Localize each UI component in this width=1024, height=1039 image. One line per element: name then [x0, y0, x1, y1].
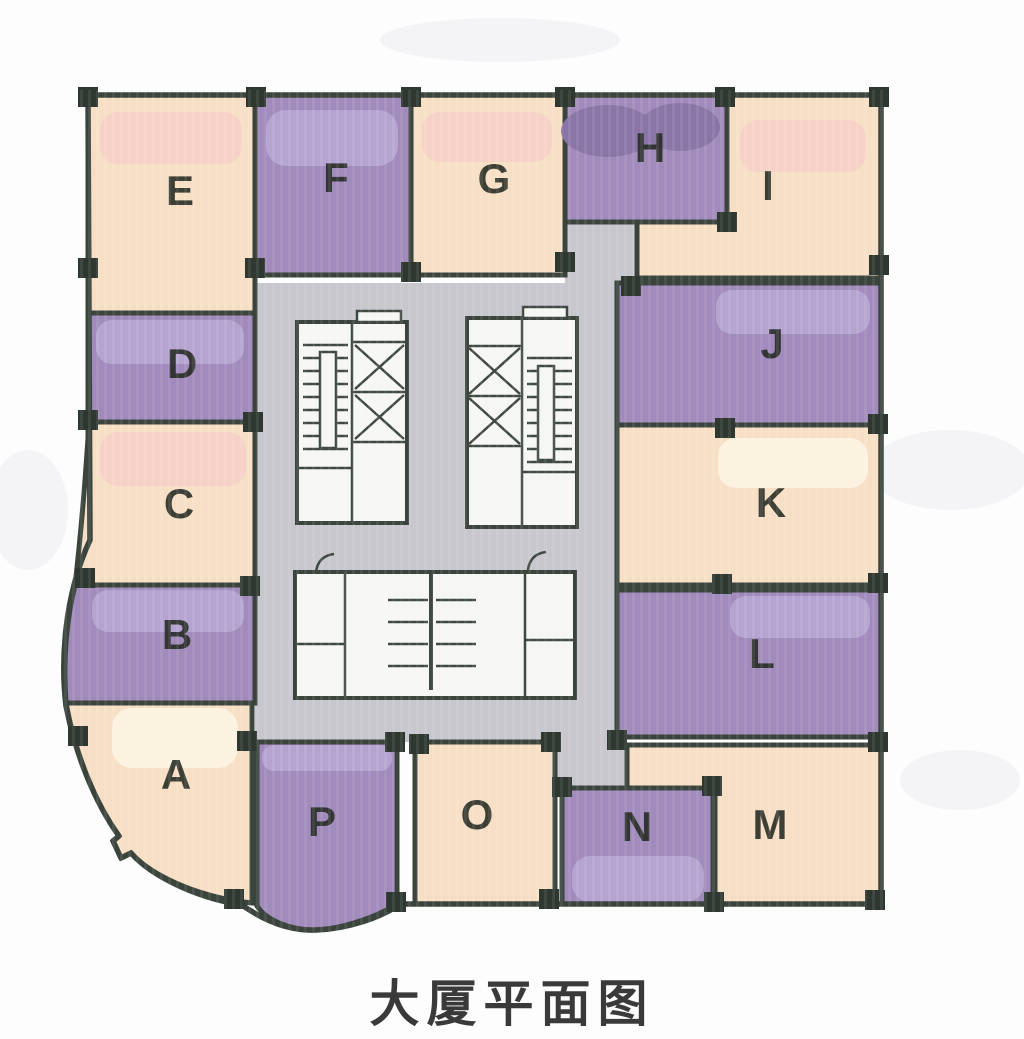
plan-caption: 大厦平面图: [0, 964, 1024, 1036]
paper-smudge: [380, 18, 620, 62]
scanned-floor-plan-page: EFGHIDCBAJKLMNOP 大厦平面图: [0, 0, 1024, 1039]
floor-plan-drawing: EFGHIDCBAJKLMNOP: [0, 0, 1024, 1039]
scan-grain: [64, 90, 884, 935]
paper-smudge: [870, 430, 1024, 510]
paper-smudge: [900, 750, 1020, 810]
paper-smudge: [0, 450, 68, 570]
